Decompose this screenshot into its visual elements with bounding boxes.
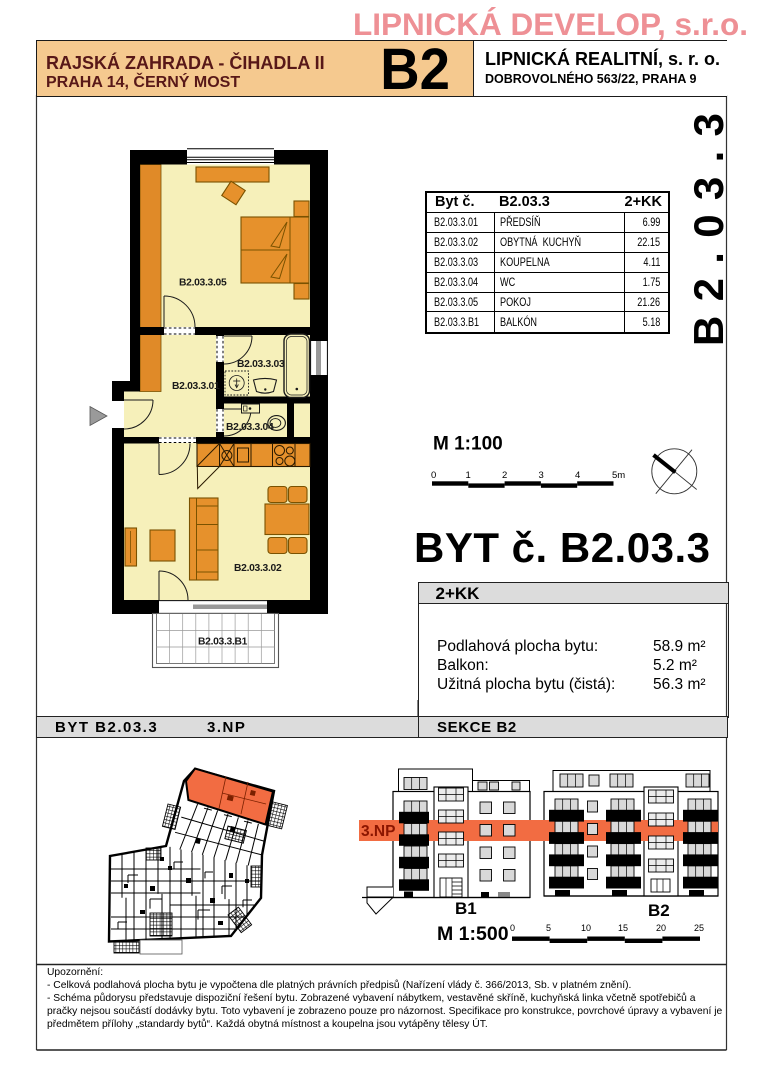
svg-text:B2.03.3.03: B2.03.3.03: [237, 359, 285, 370]
svg-text:B1: B1: [455, 899, 477, 918]
svg-text:3: 3: [539, 470, 544, 481]
svg-text:B2: B2: [648, 901, 670, 920]
svg-text:10: 10: [581, 923, 591, 933]
svg-text:B2.03.3.04: B2.03.3.04: [226, 422, 274, 433]
svg-text:1: 1: [466, 470, 471, 481]
svg-text:5: 5: [546, 923, 551, 933]
svg-text:4: 4: [575, 470, 580, 481]
svg-text:3.NP: 3.NP: [361, 823, 395, 840]
svg-text:5m: 5m: [612, 470, 625, 481]
svg-text:20: 20: [656, 923, 666, 933]
svg-text:B2.03.3.01: B2.03.3.01: [172, 381, 220, 392]
svg-text:M 1:500: M 1:500: [437, 923, 509, 945]
svg-text:B2.03.3.B1: B2.03.3.B1: [198, 637, 248, 648]
svg-text:15: 15: [618, 923, 628, 933]
svg-text:0: 0: [431, 470, 436, 481]
svg-text:2: 2: [502, 470, 507, 481]
svg-text:0: 0: [510, 923, 515, 933]
svg-text:25: 25: [694, 923, 704, 933]
svg-text:M 1:100: M 1:100: [433, 434, 503, 455]
svg-text:B2.03.3.05: B2.03.3.05: [179, 278, 227, 289]
svg-text:B2.03.3.02: B2.03.3.02: [234, 563, 282, 574]
